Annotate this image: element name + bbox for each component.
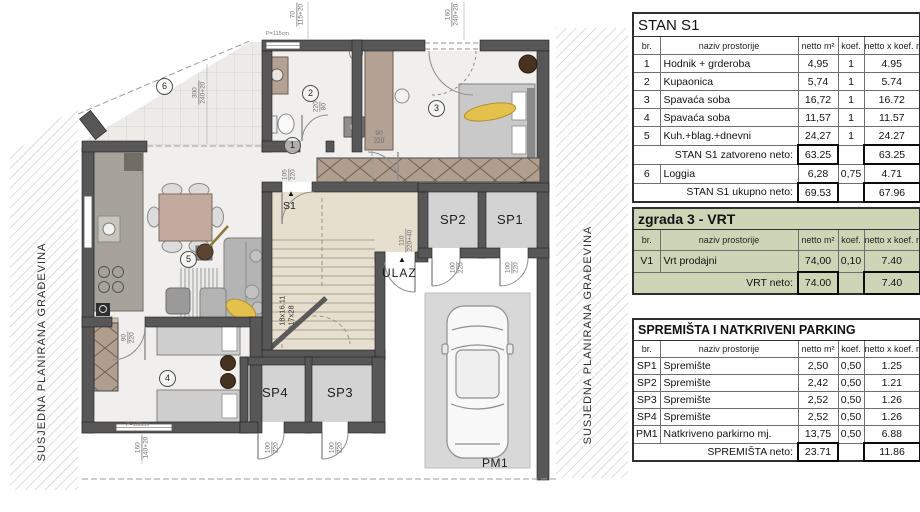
total-label: VRT neto: [633,272,798,294]
total-row: STAN S1 ukupno neto:69.5367.96 [633,183,920,202]
table-row: SP3Spremište2,520,501.26 [633,392,920,409]
table-header-row: br. naziv prostorije netto m² koef. nett… [633,230,920,251]
closet-strip [317,158,540,182]
neighbour-plot-right [556,28,628,478]
floorplan-sheet: { "plan": { "boundary_left": "SUSJEDNA P… [0,0,920,490]
total-netto: 74.00 [798,272,838,294]
subtotal-prod: 63.25 [864,145,920,164]
total-prod: 11.86 [864,443,920,461]
table-row: 1Hodnik + grderoba4,9514.95 [633,55,920,73]
plant-room4-b [221,374,236,389]
area-tables-panel: STAN S1 br. naziv prostorije netto m² ko… [632,0,920,490]
bed-room4-b [157,390,240,422]
car-icon [442,306,513,458]
table-header-row: br. naziv prostorije netto m² koef. nett… [633,341,920,358]
floor-plan-drawing [0,0,632,490]
subtotal-row: STAN S1 zatvoreno neto:63.2563.25 [633,145,920,164]
bed-room3 [459,84,535,167]
table-title: STAN S1 [633,13,920,37]
sp2-floor [428,192,478,248]
table-title: SPREMIŠTA I NATKRIVENI PARKING [633,319,920,341]
sp1-floor [486,192,537,248]
table-title-row: SPREMIŠTA I NATKRIVENI PARKING [633,319,920,341]
plant-room3-a [519,55,537,73]
table-row: SP4Spremište2,520,501.26 [633,409,920,426]
desk-chair [395,89,409,103]
sp3-floor [312,365,372,422]
subtotal-netto: 63.25 [798,145,838,164]
table-title-row: zgrada 3 - VRT [633,208,920,230]
total-netto: 69.53 [798,183,838,202]
spremista-parking-table: SPREMIŠTA I NATKRIVENI PARKING br. naziv… [632,318,920,462]
table-title-row: STAN S1 [633,13,920,37]
kitchen-counter [94,151,143,316]
table-header-row: br. naziv prostorije netto m² koef. nett… [633,37,920,55]
table-row: SP2Spremište2,420,501.21 [633,375,920,392]
total-row: SPREMIŠTA neto:23.7111.86 [633,443,920,461]
table-row: 6Loggia6,280,754.71 [633,164,920,183]
subtotal-label: STAN S1 zatvoreno neto: [633,145,798,164]
table-row: 3Spavaća soba16,72116.72 [633,91,920,109]
total-netto: 23.71 [798,443,838,461]
total-label: STAN S1 ukupno neto: [633,183,798,202]
table-row: PM1Natkriveno parkirno mj.13,750,506.88 [633,426,920,444]
table-row: 4Spavaća soba11,57111.57 [633,109,920,127]
table-row: 5Kuh.+blag.+dnevni24,27124.27 [633,127,920,146]
table-row: SP1Spremište2,500,501.25 [633,358,920,375]
plant-room4-a [221,356,236,371]
table-title: zgrada 3 - VRT [633,208,920,230]
total-prod: 67.96 [864,183,920,202]
desk-room3 [365,45,393,150]
total-prod: 7.40 [864,272,920,294]
table-row: V1Vrt prodajni74,000,107.40 [633,251,920,273]
neighbour-plot-left [10,105,78,490]
vrt-table: zgrada 3 - VRT br. naziv prostorije nett… [632,207,920,295]
loggia-floor [80,38,270,150]
floor-plan: SUSJEDNA PLANIRANA GRAĐEVINA SUSJEDNA PL… [0,0,632,490]
armchair [166,288,190,314]
table-row: 2Kupaonica5,7415.74 [633,73,920,91]
total-row: VRT neto:74.007.40 [633,272,920,294]
stan-s1-table: STAN S1 br. naziv prostorije netto m² ko… [632,12,920,203]
total-label: SPREMIŠTA neto: [633,443,798,461]
